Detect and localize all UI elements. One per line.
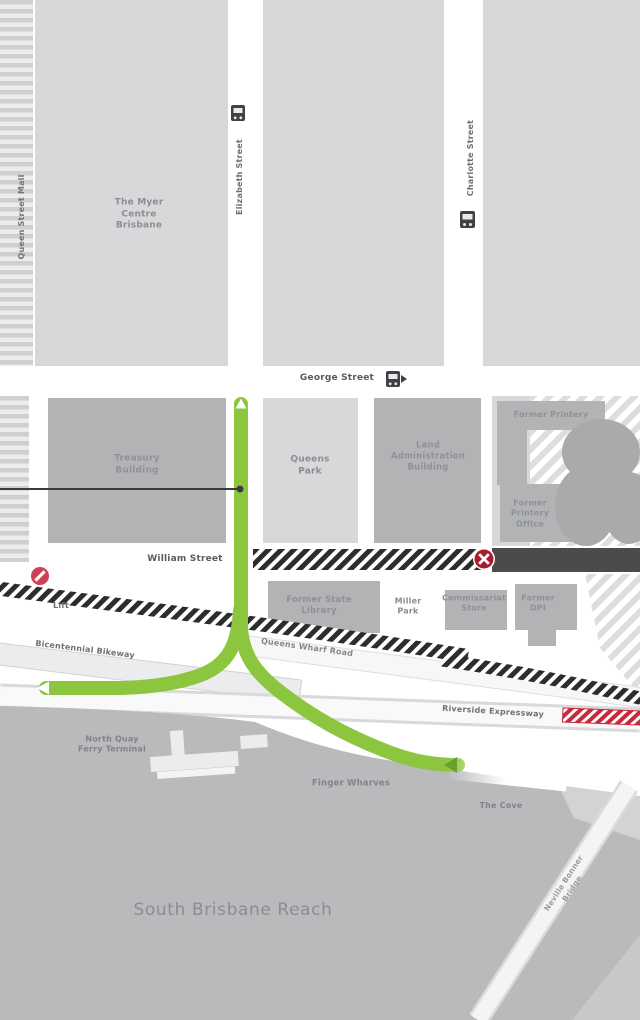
commissariat-store-block	[445, 590, 507, 630]
treasury-building-block	[48, 398, 226, 543]
william-street-closed-hatch	[253, 549, 483, 570]
callout-leader-dot	[237, 486, 244, 493]
no-entry-icon-lift	[30, 566, 51, 587]
city-block-3	[483, 0, 640, 366]
tree-canopy-shape	[555, 419, 640, 546]
william-street-closed-band	[492, 548, 640, 572]
city-block-2	[263, 0, 444, 366]
city-block-myer-centre	[35, 0, 228, 366]
bus-stop-icon-elizabeth-street	[231, 105, 245, 121]
former-dpi-block-annex	[528, 630, 556, 646]
former-printery-block-wing	[497, 401, 527, 485]
former-dpi-block	[515, 584, 577, 630]
land-administration-building-block	[374, 398, 481, 543]
map: Queen Street Mall The Myer Centre Brisba…	[0, 0, 640, 1020]
queen-street-mall-strip	[0, 0, 33, 366]
queen-street-mall-strip-lower	[0, 396, 29, 562]
queens-park-block	[263, 398, 358, 543]
map-canvas	[0, 0, 640, 1020]
bus-stop-icon-charlotte-street	[460, 211, 475, 228]
riverside-expressway-closure	[562, 708, 640, 725]
no-entry-icon-william-street	[473, 548, 495, 570]
